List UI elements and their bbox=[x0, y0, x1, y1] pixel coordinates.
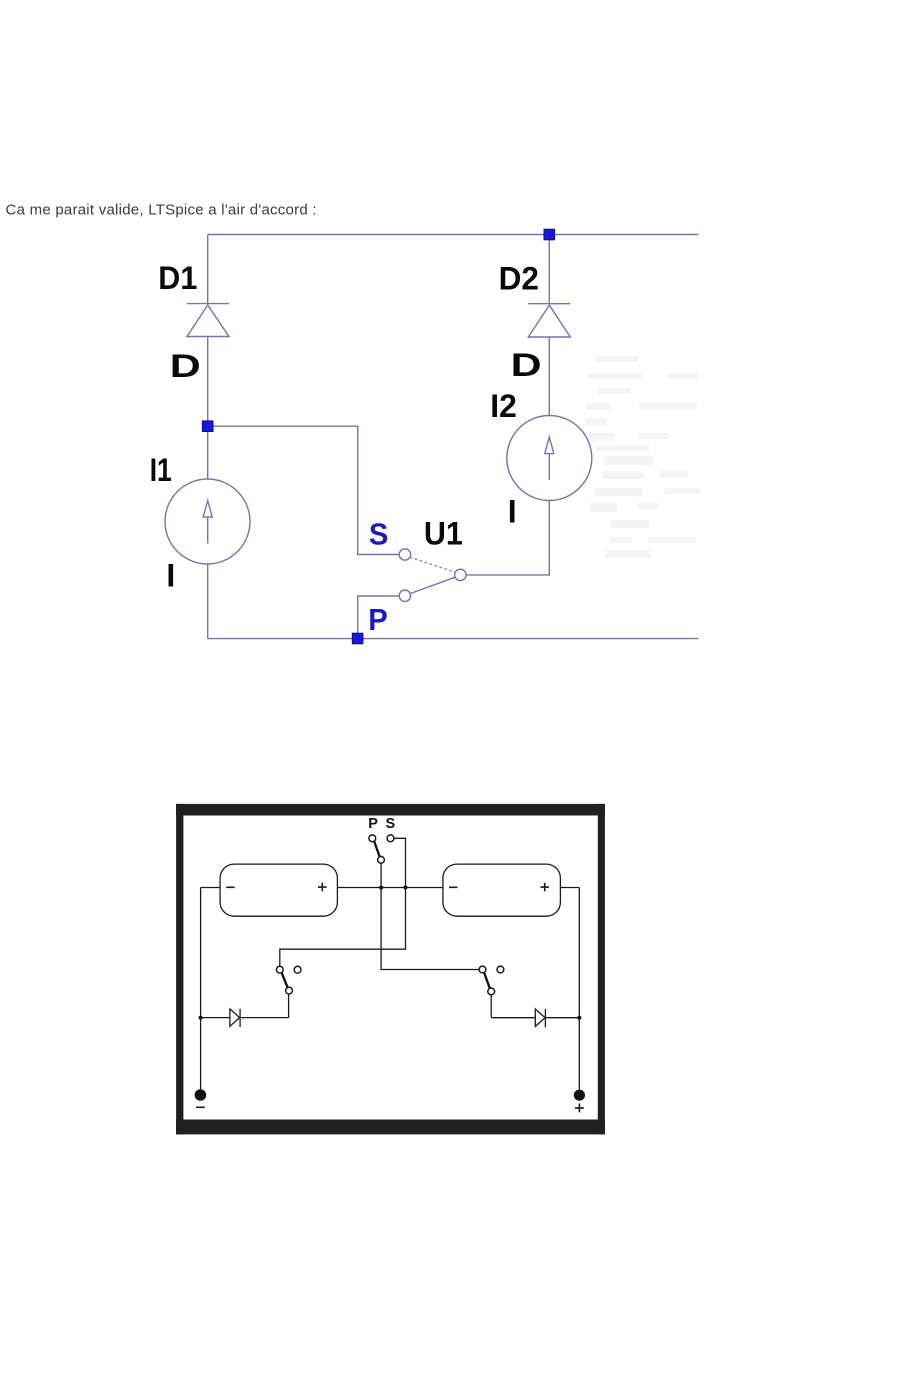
svg-text:I: I bbox=[508, 494, 517, 530]
svg-text:D: D bbox=[170, 348, 201, 384]
svg-text:D1: D1 bbox=[158, 260, 197, 296]
svg-text:D: D bbox=[511, 347, 542, 383]
svg-text:P: P bbox=[368, 816, 378, 832]
svg-text:P: P bbox=[368, 602, 388, 637]
svg-text:I1: I1 bbox=[150, 452, 172, 488]
svg-text:S: S bbox=[369, 516, 389, 551]
svg-text:D2: D2 bbox=[499, 261, 539, 297]
svg-text:Ca me parait valide, LTSpice a: Ca me parait valide, LTSpice a l'air d'a… bbox=[6, 202, 317, 219]
svg-text:U1: U1 bbox=[424, 515, 463, 551]
svg-text:I: I bbox=[166, 558, 175, 594]
svg-text:I2: I2 bbox=[490, 388, 517, 424]
svg-text:S: S bbox=[386, 816, 396, 832]
